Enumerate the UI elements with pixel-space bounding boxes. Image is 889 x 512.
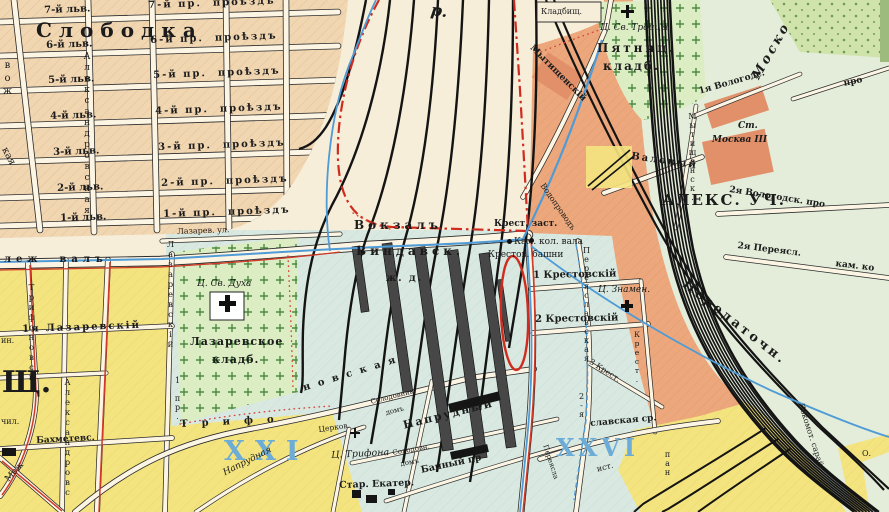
railway-mosko: Моско <box>750 20 793 81</box>
map-label-layer: Слободка7-й льв.6-й льв.5-й льв.4-й льв.… <box>0 0 889 512</box>
street-3-krest: 3 Крест. <box>588 358 622 384</box>
street-pro-fragment: про <box>843 76 863 89</box>
street-5-proezd: 5-й пр. проѣздъ <box>153 67 281 81</box>
landmark-krest-zastava: Крест. заст. <box>494 220 557 229</box>
street-lazarev-ul: Лазарев. ул. <box>177 226 230 236</box>
street-ist-fragment: ист. <box>596 462 614 474</box>
station-moskva3-line1: Ст. <box>738 122 758 131</box>
cemetery-lazarevskoye-line2: кладб. <box>212 354 259 365</box>
street-lezh-val: леж валъ <box>4 255 108 265</box>
zastava-tower-dot-west <box>507 239 512 244</box>
street-pereyaslavskaya-sr: славская ср. <box>590 414 657 429</box>
church-znamen: Ц. Знамен. <box>598 286 650 295</box>
street-1-proezd: 1-й пр. проѣздъ <box>163 206 291 220</box>
landmark-star-ekater: Стар. Екатер. <box>339 478 414 490</box>
street-trifonovskaya-part1: Трифо <box>180 414 288 430</box>
station-vokzal: Вокзалъ <box>354 219 442 231</box>
church-cross-icon-znamen <box>621 300 633 312</box>
street-kam-ko-fragment: кам. ко <box>835 260 875 274</box>
station-moskva3-line2: Москва III <box>712 136 767 145</box>
railway-peredatochn: Передаточн. <box>680 278 789 367</box>
street-fragment-vozh: вож <box>2 60 12 99</box>
street-6-lv: 6-й льв. <box>46 39 93 51</box>
zastava-tower-dot-east <box>529 238 534 243</box>
church-trinity: Ц. Св. Троицы <box>600 24 668 33</box>
station-vindavsk: Виндавск. <box>356 245 464 257</box>
street-1-pr-vertical: 1 пр. <box>173 376 181 421</box>
street-pereyaslavskaya-vertical: Переяславская <box>582 246 590 363</box>
cemetery-pyatnitskoye-line1: Пятниц. <box>597 42 676 54</box>
street-2-proezd: 2-й пр. проѣздъ <box>161 175 289 189</box>
street-fragment-r: р. <box>430 2 449 20</box>
street-naprudny: Напрудный <box>402 398 495 431</box>
street-6-proezd: 6-й пр. проѣздъ <box>150 32 278 46</box>
building-solodovnik-line1: Солодовник. <box>370 388 417 406</box>
street-3-proezd: 3-й пр. проѣздъ <box>158 139 286 153</box>
street-3-lv: 3-й льв. <box>53 146 100 158</box>
street-aleksandrovskaya-north: Александровская <box>82 52 91 217</box>
street-7-proezd: 7-й пр. проѣздъ <box>148 0 276 11</box>
church-trifona: Ц. Трифона <box>331 448 389 461</box>
street-2-lv: 2-й льв. <box>57 182 104 194</box>
building-solodovnik-line2: домъ <box>385 406 405 417</box>
street-banny-pr: Банный пр <box>420 453 482 475</box>
street-1-krestovsky: 1 Крестовскій <box>533 270 616 281</box>
station-zhd: ж. д. <box>386 274 423 284</box>
street-aleksandrovskaya-south: Александровс <box>63 378 72 498</box>
building-solodovn-line2: домъ <box>400 458 419 468</box>
landmark-kladbishch: Кладбищ. <box>541 8 582 16</box>
church-tserkov: Церков. <box>318 422 350 434</box>
railway-lokomot-saray: Локомот. сарай <box>796 402 824 468</box>
church-cross-icon-trinity <box>621 5 634 18</box>
street-mezh: Меж <box>4 461 26 484</box>
street-lazarevsky-vertical: Лазаревскій <box>166 240 175 350</box>
street-2ya-pereyasl: 2я Переясл. <box>737 242 802 259</box>
building-solodovn-line1: Солодовн. <box>392 443 430 456</box>
street-trifonovskaya-vertical: Трифоновск. <box>27 283 36 393</box>
street-mytishchensk-vertical: Мытищенск. <box>688 112 696 202</box>
street-fragment-kaya: кая <box>0 146 17 167</box>
street-mytishchensky: Мытищенскій <box>528 44 588 104</box>
cemetery-pyatnitskoye-line2: кладб. <box>603 60 660 72</box>
street-krest-vertical: Крест. <box>633 330 641 384</box>
cemetery-lazarevskoye-line1: Лазаревское <box>190 336 283 347</box>
street-2ya-vertical: 2-я <box>577 392 585 419</box>
historical-map-canvas: Слободка7-й льв.6-й льв.5-й льв.4-й льв.… <box>0 0 889 512</box>
landmark-o: О. <box>862 450 871 458</box>
street-1ya-lazarevsky: 1я Лазаревскій <box>22 321 141 335</box>
landmark-kam-kol-vala: Кам. кол. вала <box>514 238 583 247</box>
church-cross-icon-dukha <box>219 295 236 312</box>
street-pan-vertical: пан <box>663 450 671 477</box>
landmark-in: ин. <box>1 337 14 345</box>
landmark-krestov-bashni: Крестов. башни <box>488 251 563 260</box>
landmark-chil: чил. <box>1 418 19 426</box>
street-4-proezd: 4-й пр. проѣздъ <box>155 103 283 117</box>
street-trifonovskaya-part2: новская <box>302 354 404 394</box>
precinct-xxvi: XXVI <box>556 436 639 460</box>
church-cross-icon-trifona <box>350 428 360 438</box>
street-2-krestovsky: 2 Крестовскій <box>535 314 618 325</box>
church-svyatogo-dukha: Ц. Св. Духа <box>197 280 251 289</box>
street-7-lv: 7-й льв. <box>44 4 91 16</box>
